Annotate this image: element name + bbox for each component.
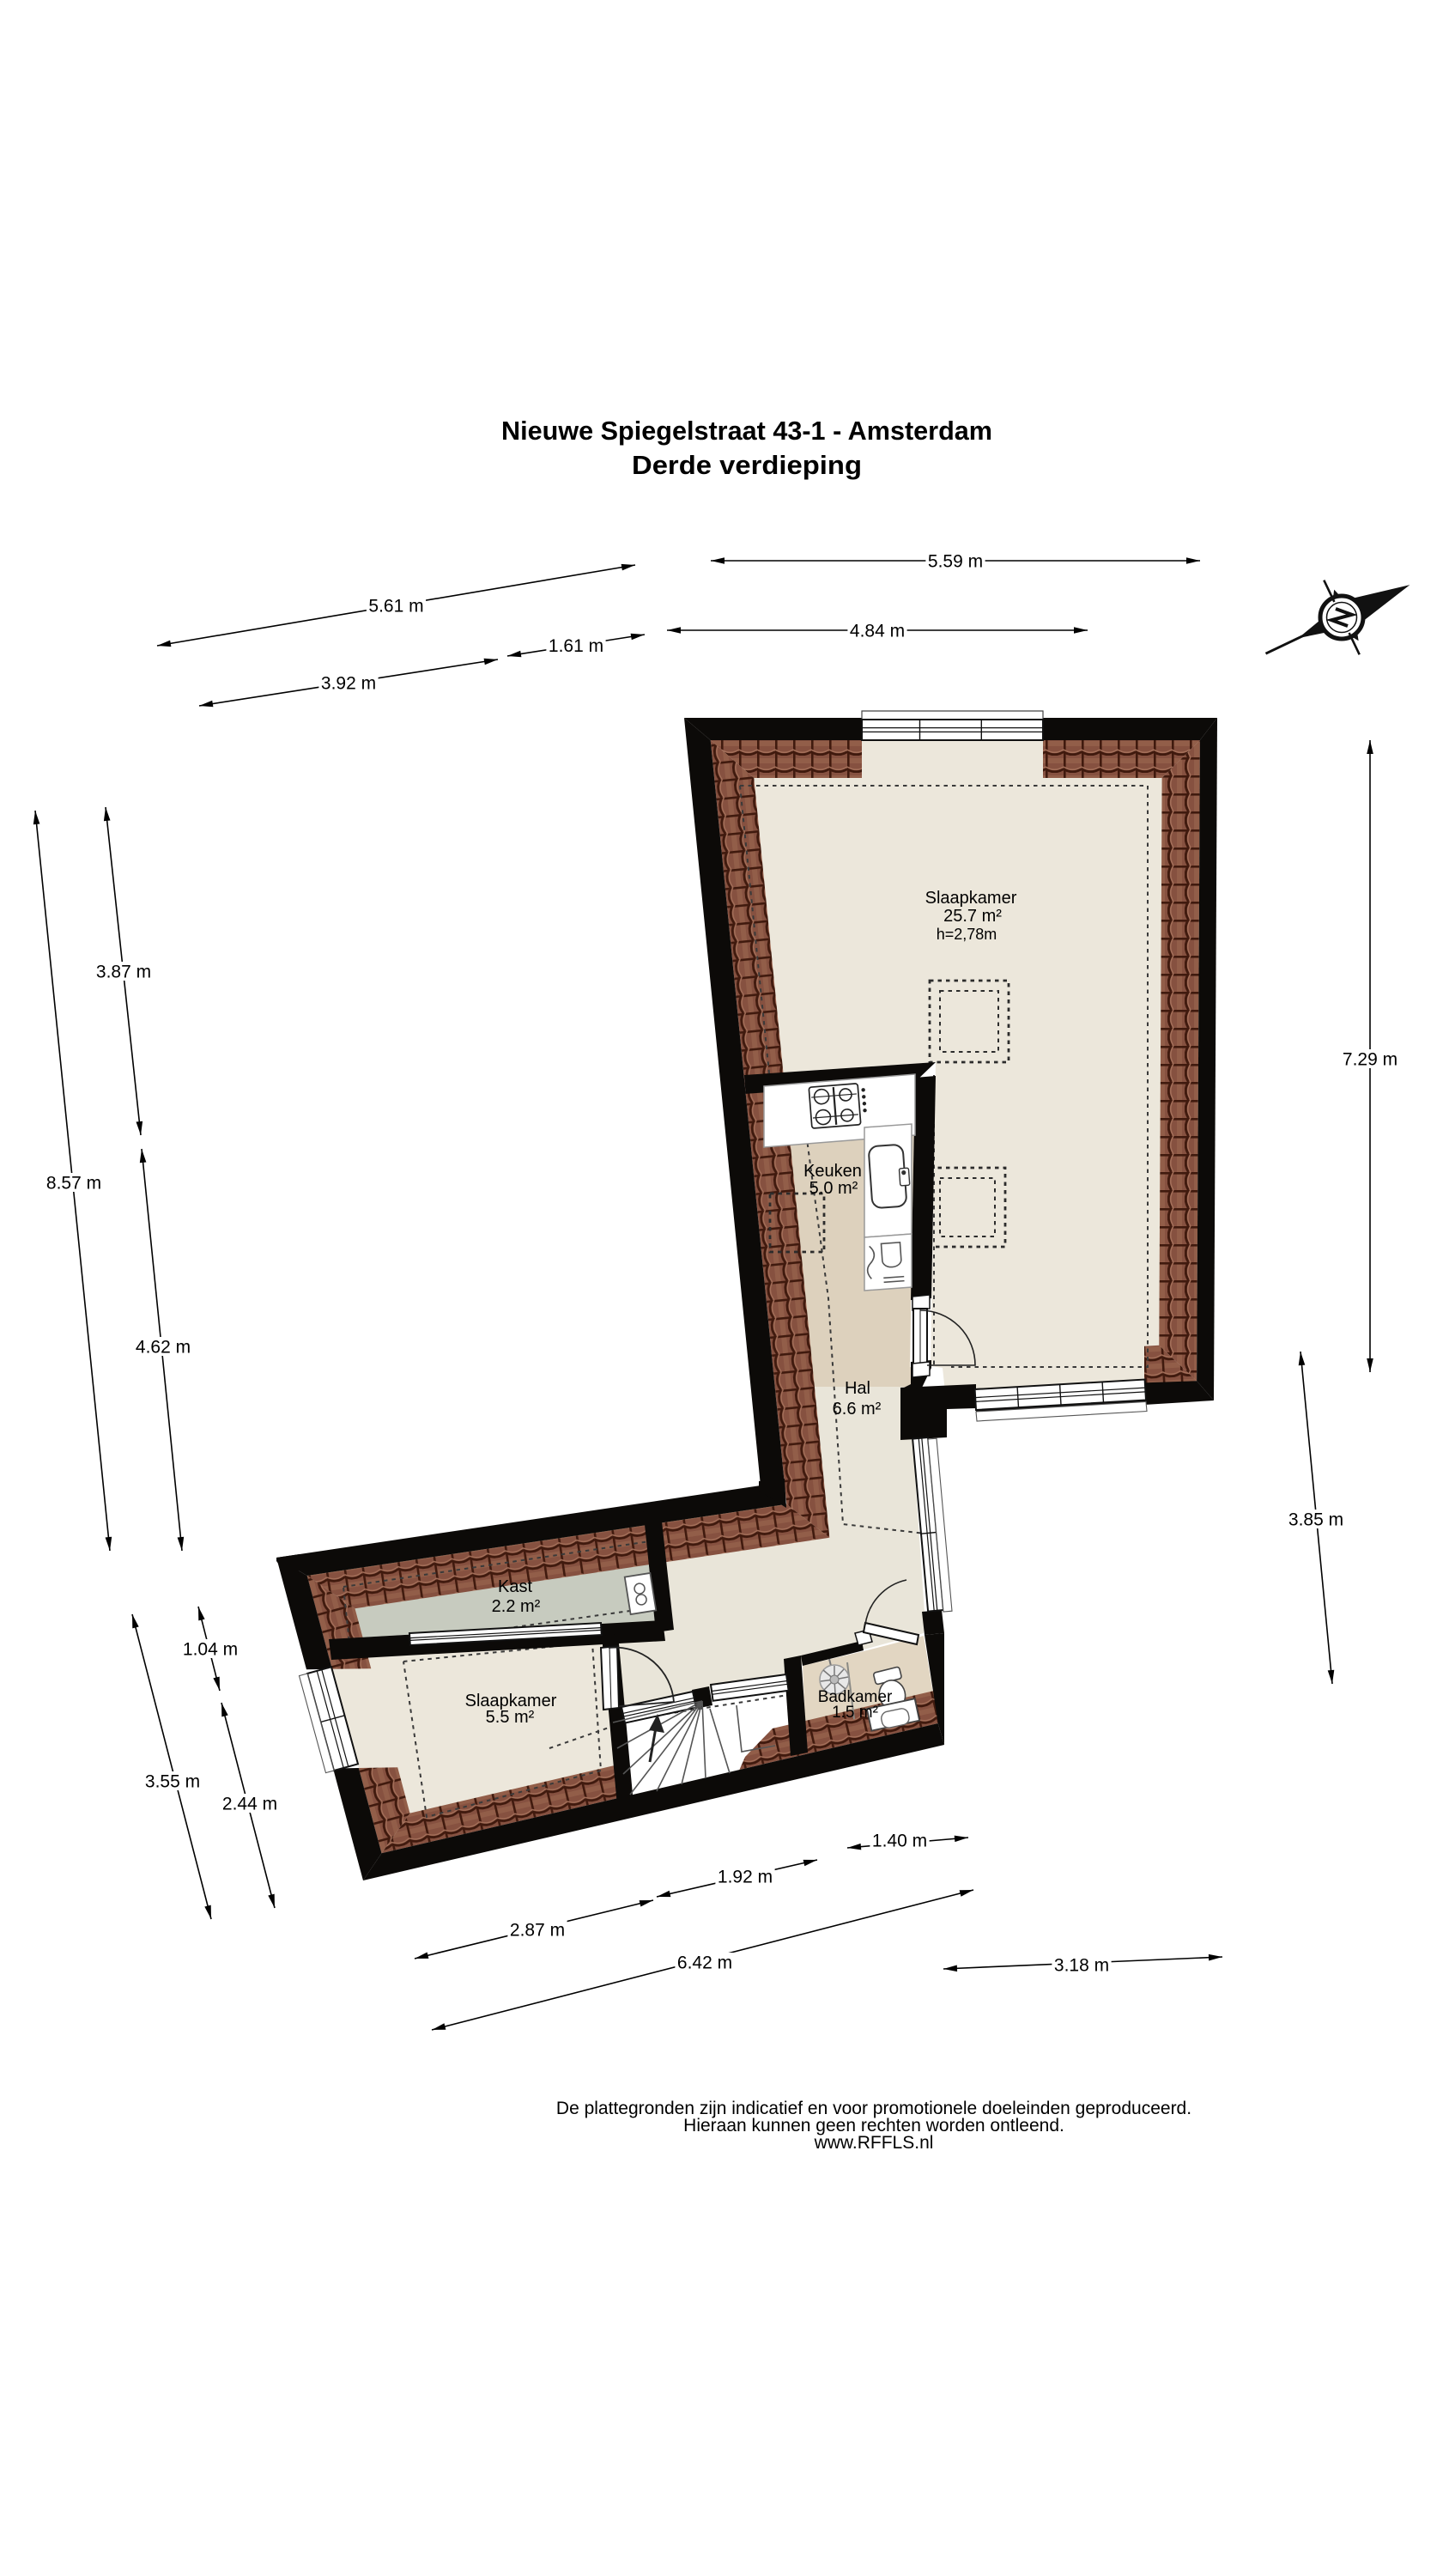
svg-text:6.42 m: 6.42 m — [677, 1953, 732, 1973]
svg-text:5.5 m²: 5.5 m² — [486, 1708, 535, 1727]
svg-text:5.61 m: 5.61 m — [368, 597, 423, 617]
svg-text:7.29 m: 7.29 m — [1343, 1050, 1397, 1070]
svg-text:3.18 m: 3.18 m — [1054, 1956, 1109, 1976]
svg-text:Slaapkamer: Slaapkamer — [925, 889, 1017, 908]
svg-text:2.44 m: 2.44 m — [222, 1795, 277, 1814]
svg-text:www.RFFLS.nl: www.RFFLS.nl — [814, 2133, 934, 2153]
svg-text:Keuken: Keuken — [803, 1162, 862, 1181]
svg-text:1.5 m²: 1.5 m² — [832, 1704, 878, 1722]
svg-text:6.6 m²: 6.6 m² — [833, 1400, 882, 1419]
svg-text:4.84 m: 4.84 m — [850, 622, 905, 641]
svg-text:2.2 m²: 2.2 m² — [492, 1597, 541, 1616]
svg-text:1.04 m: 1.04 m — [183, 1640, 238, 1660]
svg-text:25.7 m²: 25.7 m² — [943, 907, 1002, 926]
svg-text:3.85 m: 3.85 m — [1288, 1510, 1343, 1530]
svg-text:1.92 m: 1.92 m — [718, 1868, 773, 1887]
svg-text:1.61 m: 1.61 m — [549, 636, 603, 656]
svg-text:h=2,78m: h=2,78m — [937, 926, 997, 943]
svg-text:3.87 m: 3.87 m — [96, 963, 151, 982]
svg-text:Nieuwe Spiegelstraat 43-1 - Am: Nieuwe Spiegelstraat 43-1 - Amsterdam — [501, 416, 992, 446]
svg-text:3.92 m: 3.92 m — [321, 674, 376, 694]
svg-text:3.55 m: 3.55 m — [145, 1772, 200, 1792]
svg-text:Derde verdieping: Derde verdieping — [632, 450, 862, 480]
svg-text:8.57 m: 8.57 m — [46, 1174, 101, 1194]
svg-text:Hal: Hal — [845, 1379, 870, 1398]
svg-text:1.40 m: 1.40 m — [872, 1832, 927, 1851]
svg-text:4.62 m: 4.62 m — [136, 1338, 191, 1358]
svg-text:Kast: Kast — [498, 1577, 532, 1596]
svg-text:2.87 m: 2.87 m — [510, 1921, 565, 1941]
svg-text:5.59 m: 5.59 m — [928, 552, 983, 572]
svg-text:5.0 m²: 5.0 m² — [809, 1179, 858, 1198]
